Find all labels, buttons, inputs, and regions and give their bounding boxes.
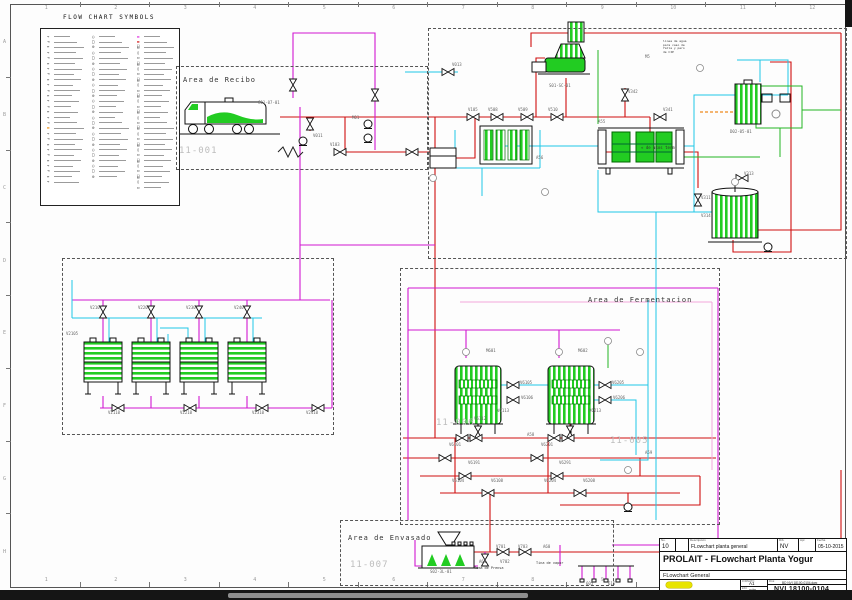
legend-text-stub xyxy=(54,52,76,53)
equipment-tag: V2401 xyxy=(234,306,246,310)
frame-tick xyxy=(497,2,498,7)
legend-symbol: ↔ xyxy=(47,143,54,147)
legend-text-stub xyxy=(54,42,77,43)
legend-symbol: ⊙ xyxy=(92,78,99,82)
legend-text-stub xyxy=(144,95,162,96)
legend-text-stub xyxy=(144,128,174,129)
legend-text-stub xyxy=(54,166,73,167)
legend-text-stub xyxy=(144,144,165,145)
legend-text-stub xyxy=(54,139,83,140)
row-ref: D xyxy=(3,259,6,264)
area-recibo-number: 11-001 xyxy=(179,146,218,156)
equipment-tag: V2110 xyxy=(108,411,120,415)
area-envasado-box xyxy=(340,520,614,586)
legend-symbol: ↔ xyxy=(47,110,54,114)
col-ref-top: 8 xyxy=(531,6,534,11)
legend-text-stub xyxy=(144,171,170,172)
equipment-tag: V103 xyxy=(330,143,340,147)
legend-symbol: ▭ xyxy=(137,137,144,141)
legend-symbol: ▭ xyxy=(137,89,144,93)
frame-tick xyxy=(6,222,11,223)
rev-date-header: Fecha xyxy=(817,539,825,542)
legend-text-stub xyxy=(99,63,120,64)
legend-symbol: ▯ xyxy=(137,99,144,103)
legend-symbol: ▭ xyxy=(137,121,144,125)
legend-text-stub xyxy=(99,52,121,53)
legend-text-stub xyxy=(144,117,160,118)
legend-text-stub xyxy=(54,171,80,172)
legend-text-stub xyxy=(144,36,160,37)
legend-text-stub xyxy=(54,85,73,86)
equipment-tag: V313 xyxy=(744,172,754,176)
legend-text-stub xyxy=(144,42,167,43)
equipment-tag: V6101 xyxy=(449,443,461,447)
frame-tick xyxy=(219,582,220,587)
legend-text-stub xyxy=(99,106,116,107)
equipment-tag: V703 xyxy=(518,545,528,549)
legend-text-stub xyxy=(144,106,161,107)
scrollbar-thumb[interactable] xyxy=(228,593,528,598)
legend-text-stub xyxy=(99,42,122,43)
legend-item: ▭ xyxy=(137,185,177,190)
legend-symbol: ⇥ xyxy=(47,153,54,157)
equipment-tag: V6204 xyxy=(544,479,556,483)
rev-by: NV xyxy=(780,544,788,550)
legend-symbol: ○ xyxy=(92,67,99,71)
rev-appr-header: Apr. xyxy=(800,539,805,542)
rev-desc-header: Descripción xyxy=(690,539,706,542)
legend-text-stub xyxy=(144,176,162,177)
legend-symbol: → xyxy=(47,132,54,136)
legend-symbol: ↔ xyxy=(47,94,54,98)
equipment-tag: V2310 xyxy=(252,411,264,415)
row-ref: G xyxy=(3,477,6,482)
equipment-tag: V314 xyxy=(701,214,711,218)
legend-text-stub xyxy=(99,85,118,86)
legend-text-stub xyxy=(144,112,168,113)
legend-text-stub xyxy=(99,128,129,129)
legend-symbol: ▯ xyxy=(137,180,144,184)
equipment-tag: A56 xyxy=(536,156,543,160)
legend-text-stub xyxy=(54,176,72,177)
title-block: No.10 DescripciónFLowchart planta genera… xyxy=(659,538,847,593)
note-text: « de usos term. xyxy=(641,146,677,151)
legend-symbol: → xyxy=(47,164,54,168)
legend-text-stub xyxy=(54,63,75,64)
row-ref: F xyxy=(3,404,6,409)
legend-symbol: ▯ xyxy=(137,83,144,87)
legend-symbol: ▯ xyxy=(137,132,144,136)
legend-text-stub xyxy=(144,52,166,53)
frame-tick xyxy=(636,2,637,7)
legend-symbol: → xyxy=(47,99,54,103)
frame-tick xyxy=(80,582,81,587)
legend-symbol: → xyxy=(47,83,54,87)
equipment-tag: A55 xyxy=(598,120,605,124)
note-text: Tina de vapor xyxy=(536,561,563,565)
equipment-tag: S02-3L-01 xyxy=(430,570,452,574)
equipment-tag: V2201 xyxy=(138,306,150,310)
legend-text-stub xyxy=(54,101,79,102)
equipment-tag: V510 xyxy=(548,108,558,112)
legend-text-stub xyxy=(54,182,79,183)
legend-symbol: ▬ xyxy=(137,35,144,39)
legend-text-stub xyxy=(144,69,172,70)
legend-symbol: ○ xyxy=(92,116,99,120)
legend-symbol: ⌸ xyxy=(137,78,144,82)
legend-text-stub xyxy=(99,144,120,145)
area-fermentacion-box xyxy=(400,268,720,525)
legend-symbol: ⇥ xyxy=(47,89,54,93)
frame-tick xyxy=(427,2,428,7)
equipment-tag: V6104 xyxy=(452,479,464,483)
file-label: FILE xyxy=(769,580,774,583)
legend-symbol: ○ xyxy=(92,148,99,152)
equipment-tag: V6201 xyxy=(541,443,553,447)
equipment-tag: V105 xyxy=(468,108,478,112)
legend-symbol: ⌸ xyxy=(137,175,144,179)
col-ref-top: 11 xyxy=(740,6,746,11)
legend-text-stub xyxy=(54,47,84,48)
legend-symbol: □ xyxy=(92,56,99,60)
legend-symbol: ⇥ xyxy=(47,121,54,125)
legend-symbol: ⇥ xyxy=(47,137,54,141)
legend-symbol: ○ xyxy=(92,99,99,103)
legend-symbol: □ xyxy=(92,121,99,125)
legend-text-stub xyxy=(99,79,126,80)
legend-text-stub xyxy=(99,90,125,91)
legend-symbol: ○ xyxy=(92,132,99,136)
legend-text-stub xyxy=(99,69,127,70)
equipment-tag: V6208 xyxy=(583,479,595,483)
legend-text-stub xyxy=(99,149,127,150)
legend-text-stub xyxy=(99,74,119,75)
col-ref-top: 6 xyxy=(392,6,395,11)
col-ref-bottom: 4 xyxy=(253,578,256,583)
legend-text-stub xyxy=(99,171,125,172)
legend-symbol: ↔ xyxy=(47,159,54,163)
legend-text-stub xyxy=(54,117,70,118)
area-fermentacion-label: Area de Fermentacion xyxy=(588,296,692,304)
legend-text-stub xyxy=(144,63,165,64)
col-ref-top: 9 xyxy=(601,6,604,11)
frame-tick xyxy=(636,582,637,587)
legend-text-stub xyxy=(54,69,82,70)
equipment-tag: V6113 xyxy=(497,409,509,413)
legend-symbol: ▯ xyxy=(137,67,144,71)
equipment-tag: V013 xyxy=(452,63,462,67)
legend-symbol: ▯ xyxy=(137,148,144,152)
drawing-title: PROLAIT - FLowchart Planta Yogur xyxy=(660,551,846,570)
equipment-tag: V6291 xyxy=(559,461,571,465)
equipment-tag: V2410 xyxy=(306,411,318,415)
legend-symbol: ⊙ xyxy=(92,175,99,179)
legend-symbol: □ xyxy=(92,89,99,93)
legend-symbol: ⌸ xyxy=(137,45,144,49)
legend-symbol: ⌸ xyxy=(137,159,144,163)
legend-text-stub xyxy=(54,155,74,156)
frame-tick xyxy=(6,77,11,78)
file-name: BD NVI 18100-0104.dwg xyxy=(782,581,817,585)
legend-item: ⊙ xyxy=(92,174,132,179)
legend-symbol: ⇥ xyxy=(47,56,54,60)
legend-symbol: □ xyxy=(92,153,99,157)
col-ref-top: 10 xyxy=(670,6,676,11)
legend-text-stub xyxy=(144,90,170,91)
legend-symbol: ⊙ xyxy=(92,126,99,130)
legend-symbol: → xyxy=(47,180,54,184)
symbol-legend: →⇥↔→⇥↔→⇥↔→⇥↔→⇥↔→⇥▬→⇥↔→⇥↔→⇥↔→○□⊙○□⊙○□⊙○□⊙… xyxy=(40,28,180,206)
frame-tick xyxy=(288,582,289,587)
equipment-tag: V6213 xyxy=(589,409,601,413)
legend-symbol: → xyxy=(47,51,54,55)
legend-symbol: ⇥ xyxy=(47,169,54,173)
legend-text-stub xyxy=(99,117,115,118)
legend-text-stub xyxy=(54,58,83,59)
legend-symbol: □ xyxy=(92,105,99,109)
legend-text-stub xyxy=(144,155,164,156)
legend-text-stub xyxy=(144,47,174,48)
legend-text-stub xyxy=(54,90,80,91)
legend-symbol: ▯ xyxy=(137,51,144,55)
legend-text-stub xyxy=(144,101,169,102)
equipment-tag: V2101 xyxy=(90,306,102,310)
legend-text-stub xyxy=(99,112,123,113)
frame-tick xyxy=(6,441,11,442)
legend-symbol: → xyxy=(47,67,54,71)
area-envasado-number: 11-007 xyxy=(350,560,389,570)
legend-text-stub xyxy=(99,155,119,156)
legend-text-stub xyxy=(54,79,81,80)
format-value: A1 xyxy=(749,581,755,586)
drawing-sheet: 112233445566778899101011111212ABCDEFGH F… xyxy=(0,0,852,600)
legend-text-stub xyxy=(144,74,164,75)
legend-title: FLOW CHART SYMBOLS xyxy=(40,14,178,21)
area-fermentacion-number-right: 11-005 xyxy=(610,436,649,446)
legend-symbol: ↔ xyxy=(47,45,54,49)
legend-text-stub xyxy=(144,149,172,150)
legend-text-stub xyxy=(144,133,166,134)
legend-text-stub xyxy=(99,176,117,177)
equipment-tag: V2301 xyxy=(186,306,198,310)
legend-symbol: ↔ xyxy=(47,78,54,82)
legend-symbol: ○ xyxy=(92,35,99,39)
equipment-tag: A58 xyxy=(527,433,534,437)
legend-text-stub xyxy=(54,36,70,37)
legend-column: ▬▬⌸▯▭⌸▯▭⌸▯▭⌸▯▭⌸▯▭⌸▯▭⌸▯▭⌸▯▭⌸▯▭ xyxy=(137,34,177,190)
legend-item: → xyxy=(47,180,87,185)
frame-tick xyxy=(6,150,11,151)
legend-symbol: ○ xyxy=(92,164,99,168)
legend-text-stub xyxy=(144,187,161,188)
legend-symbol: □ xyxy=(92,40,99,44)
legend-symbol: □ xyxy=(92,169,99,173)
legend-symbol: ○ xyxy=(92,51,99,55)
equipment-tag: V2105 xyxy=(66,332,78,336)
frame-tick xyxy=(566,2,567,7)
window-edge xyxy=(845,0,852,27)
legend-text-stub xyxy=(144,139,173,140)
equipment-tag: V6106 xyxy=(521,396,533,400)
legend-symbol: ▭ xyxy=(137,153,144,157)
area-almacenamiento-box xyxy=(62,258,334,435)
legend-symbol: ▬ xyxy=(47,126,54,130)
rev-by-header: Dib. xyxy=(779,539,784,542)
equipment-tag: M602 xyxy=(578,349,588,353)
frame-tick xyxy=(6,368,11,369)
col-ref-bottom: 3 xyxy=(184,578,187,583)
legend-symbol: ⊙ xyxy=(92,143,99,147)
equipment-tag: V6191 xyxy=(468,461,480,465)
legend-symbol: → xyxy=(47,148,54,152)
legend-symbol: → xyxy=(47,116,54,120)
equipment-tag: 615 xyxy=(608,582,615,586)
frame-tick xyxy=(80,2,81,7)
note-text: Toma de Prensa xyxy=(474,566,504,570)
rev-no: 10 xyxy=(662,544,669,550)
row-ref: A xyxy=(3,40,6,45)
equipment-tag: C01-07-01 xyxy=(258,101,280,105)
col-ref-bottom: 2 xyxy=(114,578,117,583)
legend-text-stub xyxy=(54,160,81,161)
legend-symbol: ▭ xyxy=(137,105,144,109)
legend-text-stub xyxy=(144,160,171,161)
equipment-tag: V6112 xyxy=(474,417,486,421)
legend-text-stub xyxy=(99,166,118,167)
rev-no-header: No. xyxy=(661,539,666,542)
legend-text-stub xyxy=(54,122,77,123)
legend-symbol: ⊙ xyxy=(92,94,99,98)
legend-symbol: ⌸ xyxy=(137,62,144,66)
col-ref-top: 7 xyxy=(462,6,465,11)
equipment-tag: S01-SC-01 xyxy=(549,84,571,88)
equipment-tag: M5 xyxy=(645,55,650,59)
legend-text-stub xyxy=(144,182,169,183)
equipment-tag: V011 xyxy=(313,134,323,138)
frame-tick xyxy=(358,2,359,7)
legend-symbol: ↔ xyxy=(47,62,54,66)
legend-symbol: ▭ xyxy=(137,186,144,190)
row-ref: H xyxy=(3,550,6,555)
legend-symbol: ↔ xyxy=(47,175,54,179)
equipment-tag: V341 xyxy=(663,108,673,112)
frame-tick xyxy=(149,582,150,587)
frame-tick xyxy=(6,513,11,514)
equipment-tag: V2210 xyxy=(180,411,192,415)
equipment-tag: A60 xyxy=(543,545,550,549)
legend-text-stub xyxy=(144,166,163,167)
legend-text-stub xyxy=(144,85,163,86)
frame-tick xyxy=(288,2,289,7)
equipment-tag: D02-05-01 xyxy=(730,130,752,134)
col-ref-top: 12 xyxy=(809,6,815,11)
legend-symbol: ▬ xyxy=(137,40,144,44)
legend-text-stub xyxy=(99,47,129,48)
legend-column: ○□⊙○□⊙○□⊙○□⊙○□⊙○□⊙○□⊙○□⊙○□⊙ xyxy=(92,34,132,180)
legend-symbol: □ xyxy=(92,72,99,76)
legend-symbol: ⊙ xyxy=(92,110,99,114)
legend-text-stub xyxy=(54,128,84,129)
equipment-tag: A59 xyxy=(645,451,652,455)
legend-text-stub xyxy=(54,112,78,113)
frame-tick xyxy=(219,2,220,7)
equipment-tag: V311 xyxy=(701,196,711,200)
col-ref-top: 5 xyxy=(323,6,326,11)
legend-symbol: ⇥ xyxy=(47,72,54,76)
equipment-tag: V509 xyxy=(518,108,528,112)
row-ref: C xyxy=(3,186,6,191)
rev-desc: FLowchart planta general xyxy=(691,544,747,550)
legend-symbol: □ xyxy=(92,137,99,141)
frame-tick xyxy=(149,2,150,7)
legend-text-stub xyxy=(99,122,122,123)
legend-symbol: ⊙ xyxy=(92,62,99,66)
scrollbar-track[interactable] xyxy=(0,590,852,600)
legend-text-stub xyxy=(54,95,72,96)
legend-symbol: ⌸ xyxy=(137,94,144,98)
legend-symbol: ⇥ xyxy=(47,40,54,44)
legend-symbol: ▭ xyxy=(137,72,144,76)
equipment-tag: M01 xyxy=(352,116,359,120)
area-recibo-label: Area de Recibo xyxy=(183,76,256,84)
col-ref-bottom: 5 xyxy=(323,578,326,583)
area-fermentacion-number-left: 11-006 xyxy=(436,418,475,428)
legend-symbol: → xyxy=(47,35,54,39)
legend-text-stub xyxy=(54,106,71,107)
legend-text-stub xyxy=(99,36,115,37)
legend-text-stub xyxy=(144,122,167,123)
legend-text-stub xyxy=(99,139,128,140)
equipment-tag: V701 xyxy=(496,545,506,549)
legend-text-stub xyxy=(54,133,76,134)
equipment-tag: V702 xyxy=(500,560,510,564)
equipment-tag: V342 xyxy=(628,90,638,94)
equipment-tag: V508 xyxy=(488,108,498,112)
legend-text-stub xyxy=(99,101,124,102)
area-pasteurizacion-box xyxy=(428,28,847,259)
legend-text-stub xyxy=(144,79,171,80)
legend-text-stub xyxy=(99,58,128,59)
legend-symbol: ⇥ xyxy=(47,105,54,109)
legend-symbol: ▯ xyxy=(137,116,144,120)
equipment-tag: V6108 xyxy=(491,479,503,483)
legend-symbol: ⊙ xyxy=(92,159,99,163)
legend-symbol: ⌸ xyxy=(137,110,144,114)
legend-symbol: ▭ xyxy=(137,56,144,60)
legend-symbol: ⌸ xyxy=(137,143,144,147)
legend-text-stub xyxy=(99,160,126,161)
legend-text-stub xyxy=(144,58,173,59)
row-ref: B xyxy=(3,113,6,118)
legend-text-stub xyxy=(54,144,75,145)
equipment-tag: M601 xyxy=(486,349,496,353)
note-text: linea de aguapara caso defalla y parode … xyxy=(663,40,686,54)
company-logo xyxy=(666,582,692,588)
equipment-tag: V6205 xyxy=(612,381,624,385)
frame-tick xyxy=(6,295,11,296)
legend-text-stub xyxy=(99,95,117,96)
legend-symbol: ▯ xyxy=(137,164,144,168)
rev-date: 05-10-2015 xyxy=(818,544,844,550)
row-ref: E xyxy=(3,331,6,336)
legend-text-stub xyxy=(54,149,82,150)
equipment-tag: A61 xyxy=(479,560,486,564)
frame-tick xyxy=(705,2,706,7)
col-ref-top: 1 xyxy=(45,6,48,11)
legend-symbol: ▭ xyxy=(137,169,144,173)
col-ref-bottom: 1 xyxy=(45,578,48,583)
legend-column: →⇥↔→⇥↔→⇥↔→⇥↔→⇥↔→⇥▬→⇥↔→⇥↔→⇥↔→ xyxy=(47,34,87,185)
